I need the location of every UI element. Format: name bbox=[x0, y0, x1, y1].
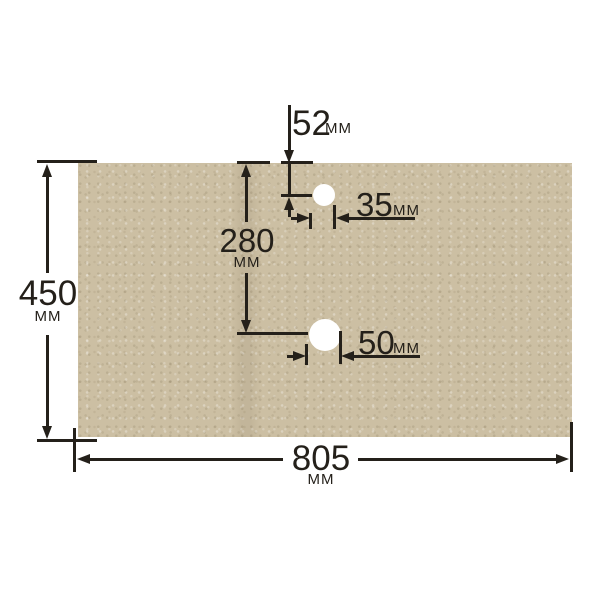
hole1-dia-tick-left bbox=[309, 213, 312, 229]
height-dim-extension-bottom bbox=[37, 439, 97, 442]
hole2-dia-tick-left bbox=[305, 344, 308, 365]
hole2-offset-line-lower bbox=[245, 273, 248, 322]
hole2-center-line bbox=[237, 332, 308, 335]
hole2-dia-value: 50 bbox=[358, 326, 395, 359]
height-dim-line-upper bbox=[46, 175, 49, 273]
hole1-offset-line-lower bbox=[288, 208, 291, 217]
width-dim-line-left bbox=[88, 458, 283, 461]
hole1-dia-value: 35 bbox=[356, 188, 393, 221]
hole1-offset-line-upper bbox=[288, 105, 291, 151]
hole2-offset-line-upper bbox=[245, 175, 248, 222]
hole-1 bbox=[313, 184, 335, 206]
height-dim-arrow-bottom-icon bbox=[42, 426, 52, 439]
hole1-offset-span-line bbox=[288, 164, 291, 196]
height-dim-value: 450 bbox=[16, 276, 80, 311]
width-dim-extension-right bbox=[570, 422, 573, 472]
hole2-offset-unit: мм bbox=[215, 255, 279, 270]
height-dim-line-lower bbox=[46, 335, 49, 427]
hole1-offset-tick-top bbox=[281, 161, 313, 164]
width-dim-arrow-right-icon bbox=[556, 454, 569, 464]
hole-2 bbox=[309, 319, 341, 351]
hole1-offset-unit: мм bbox=[325, 121, 352, 136]
width-dim-extension-left bbox=[73, 428, 76, 472]
width-dim-line-right bbox=[358, 458, 558, 461]
hole1-dia-unit: мм bbox=[393, 203, 420, 218]
height-dim-unit: мм bbox=[16, 309, 80, 324]
hole2-dia-unit: мм bbox=[393, 341, 420, 356]
dimension-drawing: 450 мм 805 мм 52 мм 280 мм 35 мм 50 мм bbox=[0, 0, 600, 600]
hole2-offset-value: 280 bbox=[215, 224, 279, 257]
height-dim-extension-top bbox=[37, 160, 97, 163]
width-dim-unit: мм bbox=[284, 472, 358, 487]
